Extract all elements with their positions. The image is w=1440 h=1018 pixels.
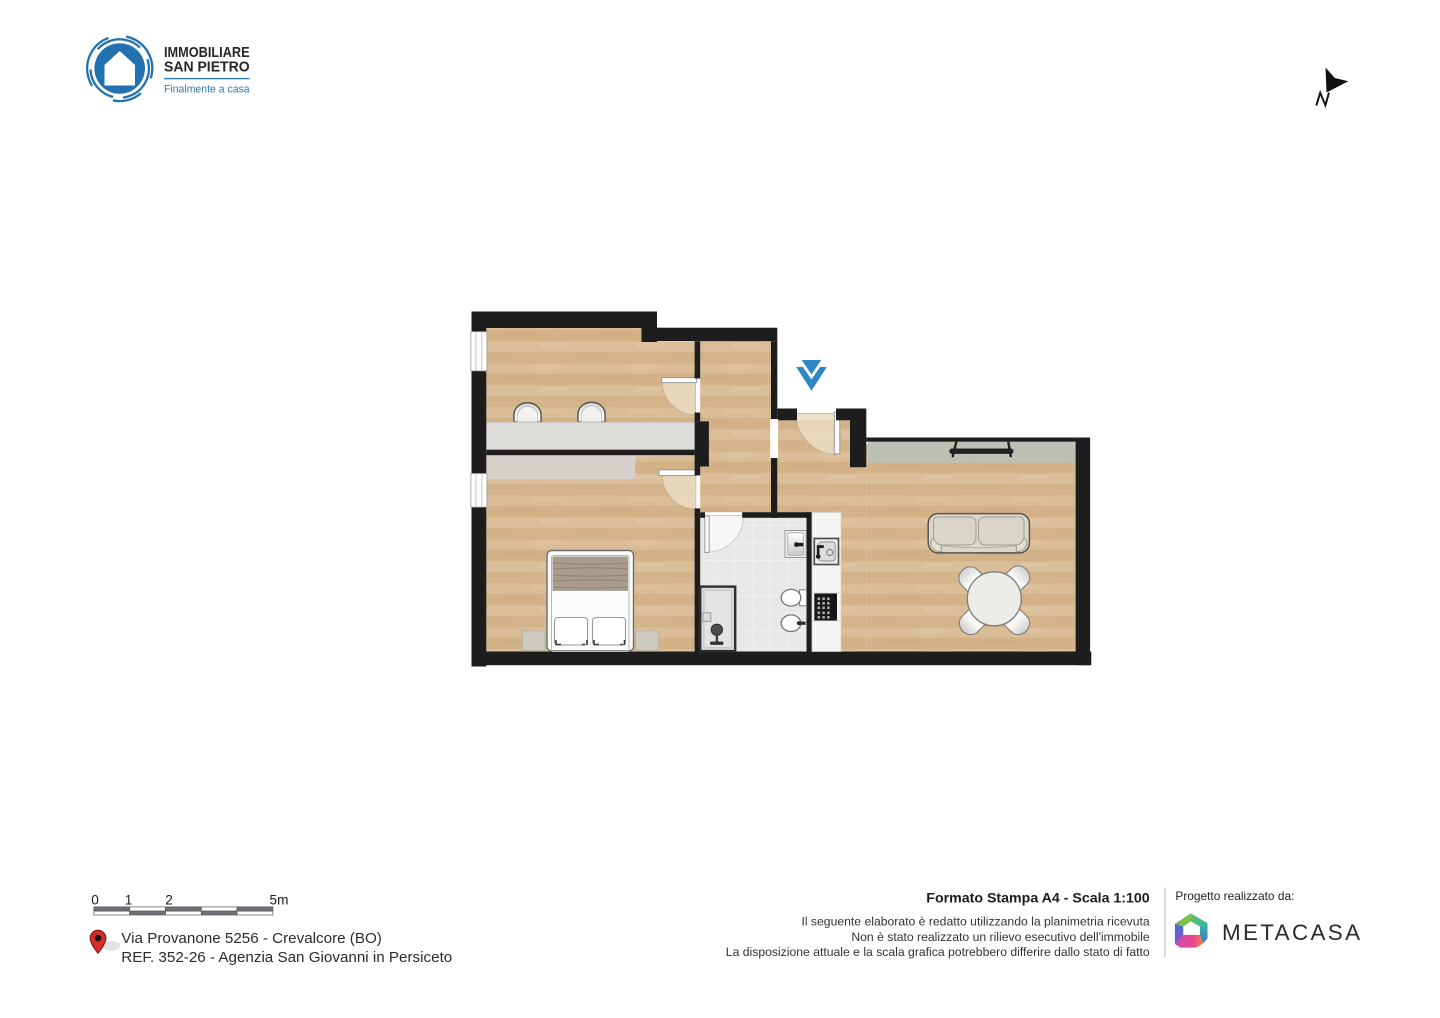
svg-text:Finalmente a casa: Finalmente a casa [164,83,250,95]
svg-text:Non è stato realizzato un rili: Non è stato realizzato un rilievo esecut… [851,930,1150,944]
svg-text:1: 1 [125,893,133,908]
svg-text:La disposizione attuale e la s: La disposizione attuale e la scala grafi… [726,945,1150,959]
svg-text:Via Provanone 5256 - Crevalcor: Via Provanone 5256 - Crevalcore (BO) [121,930,382,947]
svg-text:2: 2 [165,893,173,908]
svg-text:5m: 5m [270,893,289,908]
svg-text:0: 0 [91,893,99,908]
svg-text:METACASA: METACASA [1222,920,1360,945]
svg-text:Progetto realizzato da:: Progetto realizzato da: [1175,889,1294,903]
svg-text:REF. 352-26 - Agenzia San Giov: REF. 352-26 - Agenzia San Giovanni in Pe… [121,949,452,966]
svg-text:SAN PIETRO: SAN PIETRO [164,59,250,75]
svg-text:Formato Stampa A4 - Scala 1:10: Formato Stampa A4 - Scala 1:100 [926,891,1150,907]
svg-text:Il seguente elaborato è redatt: Il seguente elaborato è redatto utilizza… [801,915,1149,929]
